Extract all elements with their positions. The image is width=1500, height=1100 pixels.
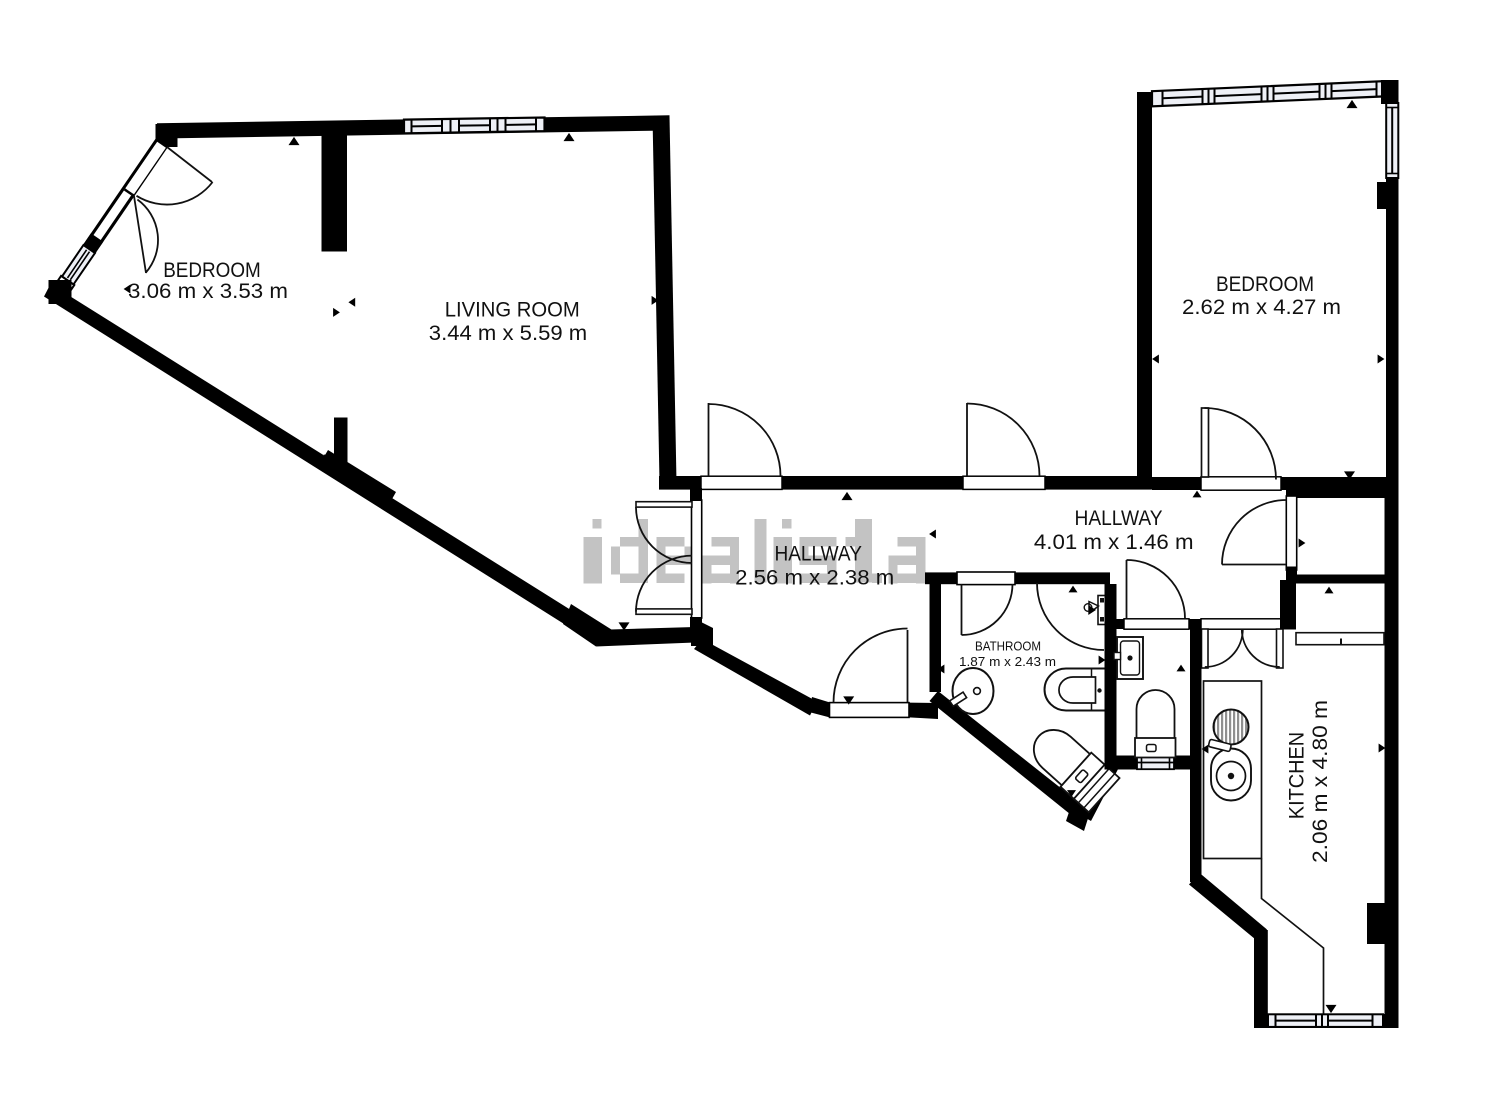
svg-text:3.44 m x 5.59 m: 3.44 m x 5.59 m [429,322,587,345]
svg-text:2.06 m x 4.80 m: 2.06 m x 4.80 m [1309,700,1332,863]
svg-text:LIVING ROOM: LIVING ROOM [445,299,580,322]
svg-text:BATHROOM: BATHROOM [975,639,1041,654]
svg-text:2.62 m x 4.27 m: 2.62 m x 4.27 m [1182,296,1341,319]
svg-text:4.01 m x 1.46 m: 4.01 m x 1.46 m [1034,531,1194,554]
svg-text:KITCHEN: KITCHEN [1286,732,1309,819]
svg-text:1.87 m x 2.43 m: 1.87 m x 2.43 m [959,654,1056,669]
svg-text:3.06 m x 3.53 m: 3.06 m x 3.53 m [128,280,288,303]
svg-text:2.56 m x 2.38 m: 2.56 m x 2.38 m [735,567,894,590]
svg-text:BEDROOM: BEDROOM [1216,273,1314,296]
svg-text:HALLWAY: HALLWAY [775,542,862,565]
svg-text:HALLWAY: HALLWAY [1075,507,1163,530]
svg-text:BEDROOM: BEDROOM [163,259,261,282]
